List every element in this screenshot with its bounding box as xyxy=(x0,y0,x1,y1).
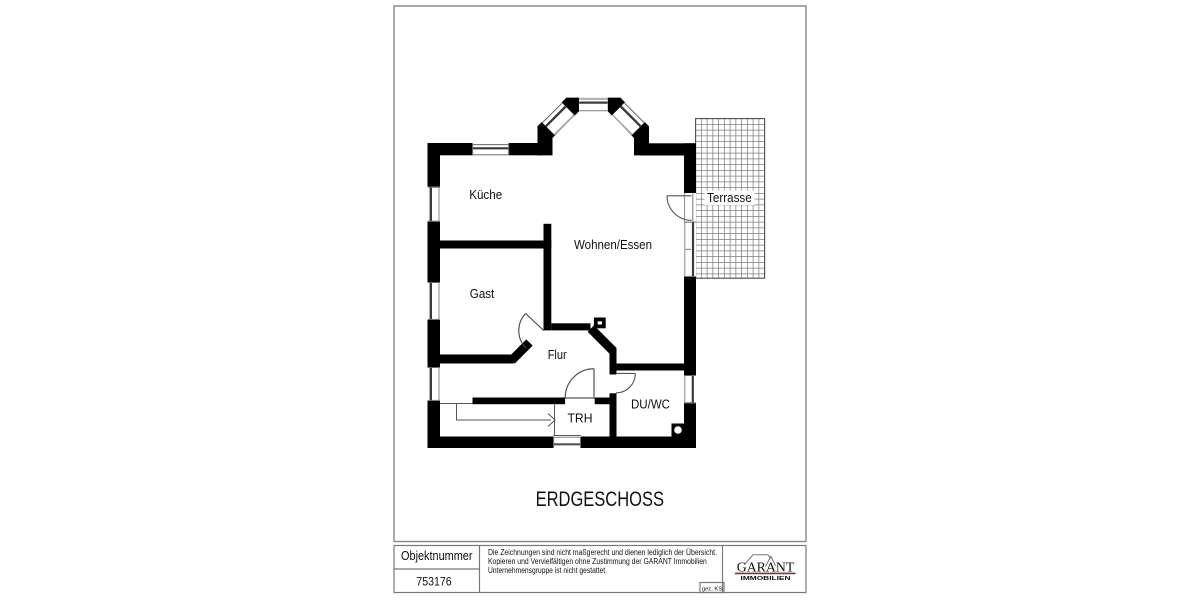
svg-text:ERDGESCHOSS: ERDGESCHOSS xyxy=(536,487,664,511)
svg-text:Wohnen/Essen: Wohnen/Essen xyxy=(574,237,652,252)
svg-text:TRH: TRH xyxy=(568,410,593,425)
svg-text:DU/WC: DU/WC xyxy=(631,397,670,412)
svg-text:Küche: Küche xyxy=(469,187,502,202)
svg-text:Gast: Gast xyxy=(470,286,495,301)
svg-text:gez. KS: gez. KS xyxy=(702,587,722,593)
svg-text:753176: 753176 xyxy=(416,574,451,588)
svg-text:Objektnummer: Objektnummer xyxy=(401,548,473,563)
svg-text:IMMOBILIEN: IMMOBILIEN xyxy=(741,576,791,582)
svg-text:Die Zeichnungen sind nicht maß: Die Zeichnungen sind nicht maßgerecht un… xyxy=(488,548,717,557)
svg-text:Kopieren und Vervielfältigen o: Kopieren und Vervielfältigen ohne Zustim… xyxy=(488,557,707,566)
svg-text:Unternehmensgruppe ist nicht g: Unternehmensgruppe ist nicht gestattet. xyxy=(488,566,607,575)
svg-text:Terrasse: Terrasse xyxy=(707,190,752,205)
svg-text:Flur: Flur xyxy=(548,347,568,362)
svg-text:GARANT: GARANT xyxy=(737,560,795,575)
